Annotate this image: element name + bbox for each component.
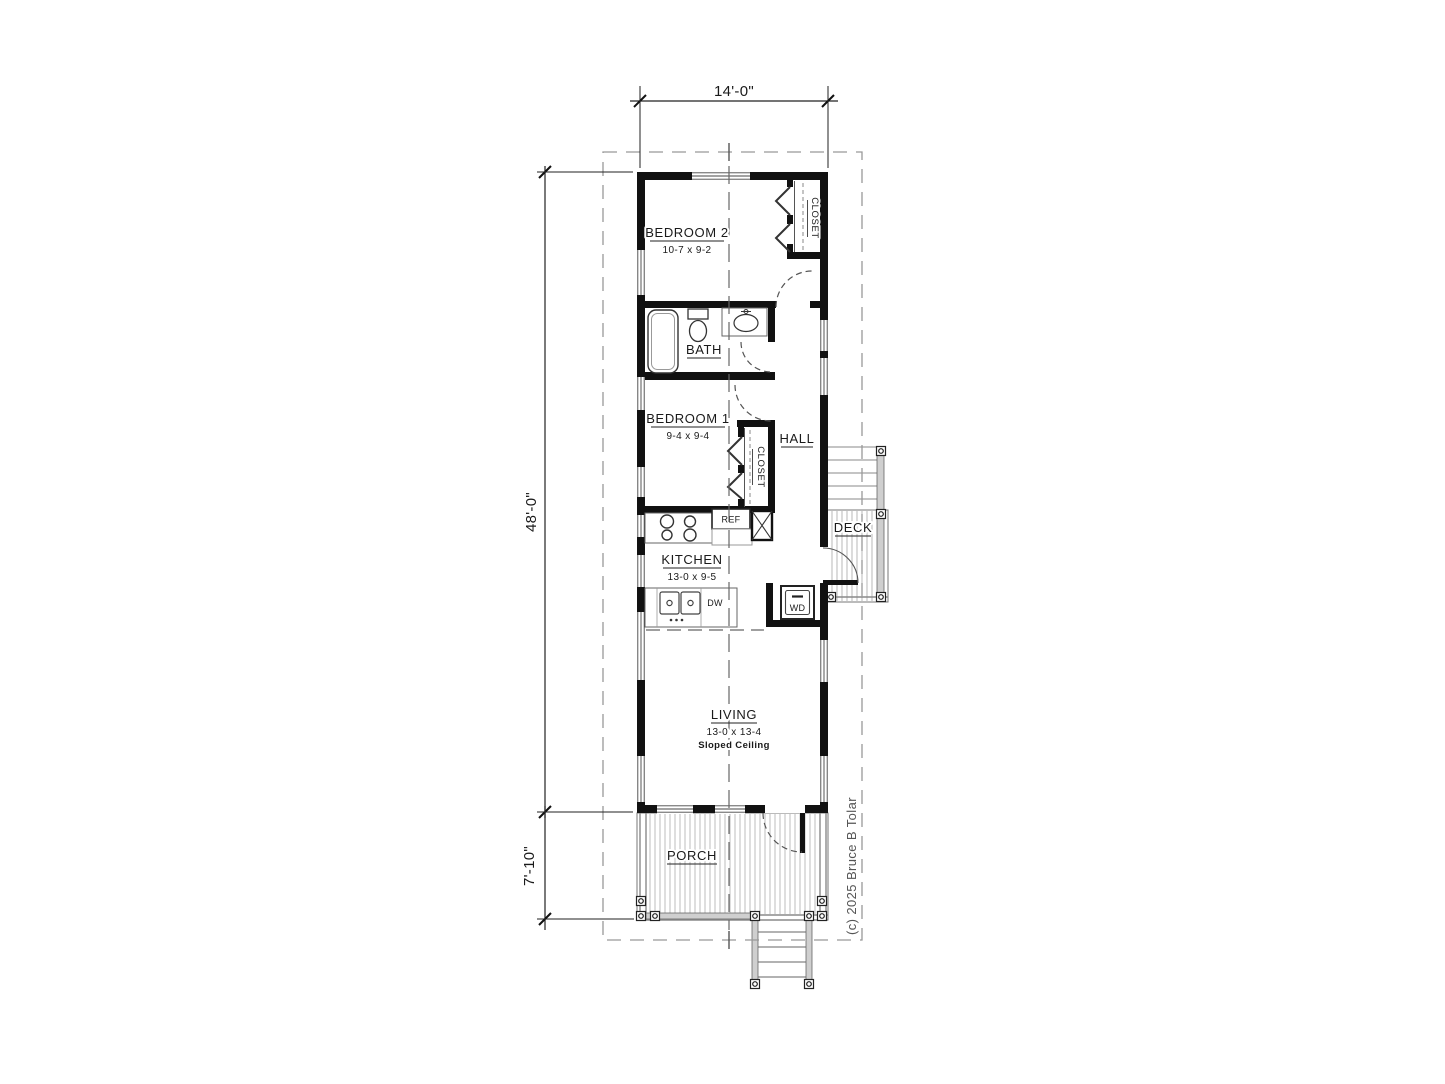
deck-stairs [828,447,877,499]
hall-name: HALL [780,431,815,446]
kitchen-size: 13-0 x 9-5 [667,572,716,583]
living-note: Sloped Ceiling [698,740,770,751]
copyright-note: (c) 2025 Bruce B Tolar [844,797,859,935]
porch-railing [646,913,754,919]
label-hall: HALL [780,431,815,447]
closet-label: CLOSET [755,446,766,488]
porch-door-leaf [800,813,805,853]
label-bath: BATH [686,342,722,358]
faucet-dots-icon [670,619,684,622]
washer-dryer-label: WD [790,603,806,613]
dim-height-porch-label: 7'-10" [521,846,538,886]
porch-area [637,813,829,989]
bedroom1-name: BEDROOM 1 [646,411,729,426]
label-porch: PORCH [667,848,717,864]
floor-plan-drawing: 14'-0" 48'-0" 7'-10" [0,0,1445,1084]
washer-dryer: WD [781,586,814,619]
deck-name: DECK [834,520,873,535]
floor-plan-page: 14'-0" 48'-0" 7'-10" [0,0,1445,1084]
bathtub [648,310,678,373]
porch-name: PORCH [667,848,717,863]
toilet [688,309,708,342]
closet-label: CLOSET [809,197,820,239]
dimension-left-main: 48'-0" [523,166,633,818]
dimension-top: 14'-0" [630,83,838,168]
deck-door-leaf [823,580,858,585]
deck-railing [877,447,884,601]
label-kitchen: KITCHEN 13-0 x 9-5 [661,552,722,583]
label-deck: DECK [834,520,873,536]
dim-width-label: 14'-0" [714,83,754,100]
utility-chase [752,511,772,540]
kitchen-name: KITCHEN [661,552,722,567]
bedroom2-size: 10-7 x 9-2 [662,245,711,256]
bedroom1-size: 9-4 x 9-4 [666,431,709,442]
living-size: 13-0 x 13-4 [707,727,762,738]
refrigerator-label: REF [722,515,741,525]
porch-steps [751,919,814,989]
dimension-left-porch: 7'-10" [521,806,634,930]
living-name: LIVING [711,707,757,722]
dim-height-main-label: 48'-0" [523,492,540,532]
bedroom2-name: BEDROOM 2 [645,225,728,240]
bath-name: BATH [686,342,722,357]
dishwasher-label: DW [707,598,723,608]
